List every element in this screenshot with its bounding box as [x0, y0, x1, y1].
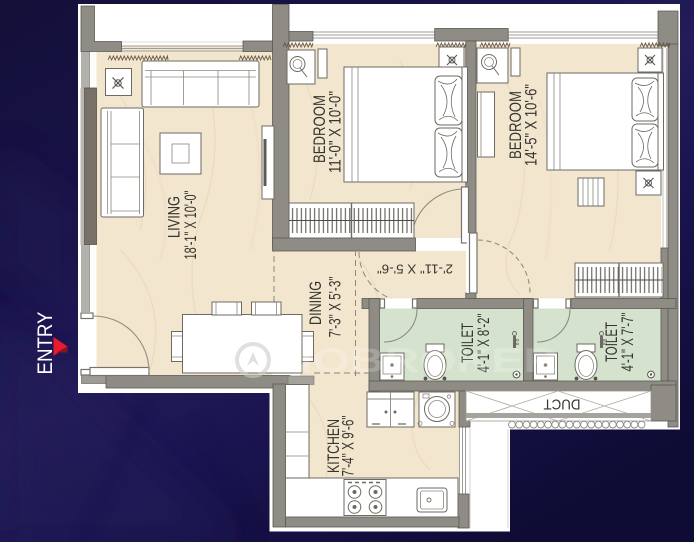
svg-text:NOBROKER: NOBROKER [278, 342, 558, 380]
svg-text:18'-1" X 10'-0": 18'-1" X 10'-0" [181, 191, 200, 260]
svg-text:DINING: DINING [307, 281, 325, 325]
svg-text:7'-4" X 9'-6": 7'-4" X 9'-6" [340, 415, 358, 476]
svg-text:11'-0" X 10'-0": 11'-0" X 10'-0" [327, 91, 345, 173]
svg-text:DUCT: DUCT [544, 396, 581, 413]
svg-text:4'-1" X 7'-7": 4'-1" X 7'-7" [619, 312, 637, 371]
svg-text:14'-5" X 10'-6": 14'-5" X 10'-6" [523, 84, 541, 166]
svg-text:2'-11" X 5'-6": 2'-11" X 5'-6" [377, 262, 453, 277]
svg-text:7'-3" X 5'-3": 7'-3" X 5'-3" [327, 276, 345, 337]
